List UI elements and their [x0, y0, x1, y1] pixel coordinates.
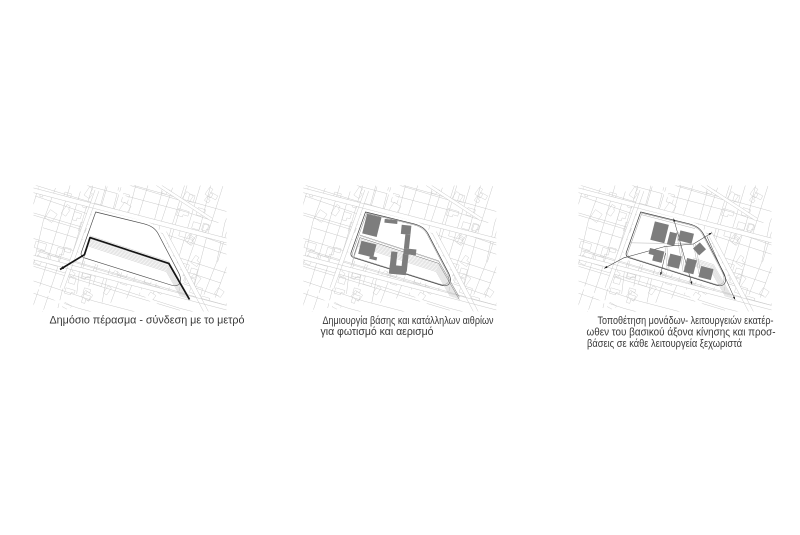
svg-text:Τοποθέτηση μονάδων- λειτουργει: Τοποθέτηση μονάδων- λειτουργειών εκατέρ-: [598, 315, 774, 327]
svg-text:βάσεις σε κάθε λειτουργεία ξεχ: βάσεις σε κάθε λειτουργεία ξεχωριστά: [587, 338, 743, 350]
svg-text:ωθεν του βασικού άξονα κίνησης: ωθεν του βασικού άξονα κίνησης και προσ-: [587, 327, 776, 339]
svg-text:για φωτισμό και αερισμό: για φωτισμό και αερισμό: [321, 326, 434, 338]
svg-text:Δημόσιο πέρασμα - σύνδεση με τ: Δημόσιο πέρασμα - σύνδεση με το μετρό: [50, 315, 245, 327]
